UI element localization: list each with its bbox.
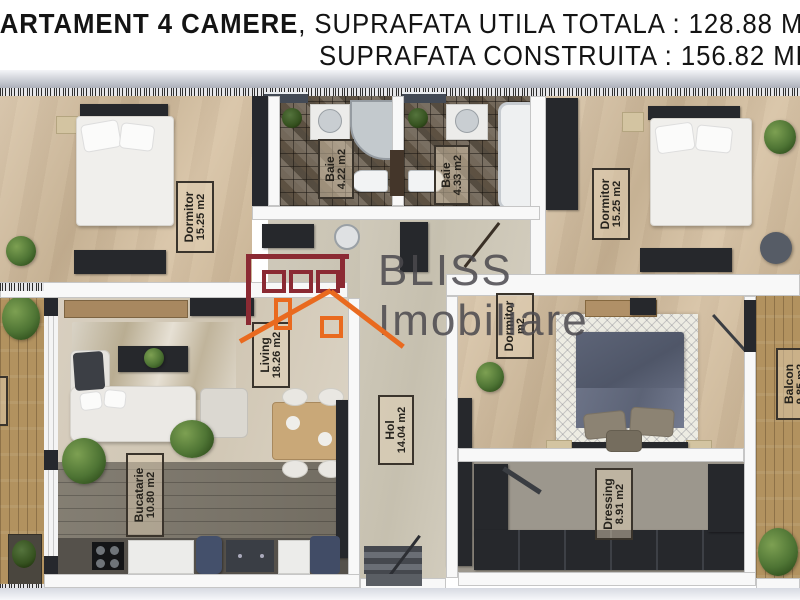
burner-icon bbox=[96, 559, 105, 568]
room-name: Dressing bbox=[602, 478, 615, 529]
wall-living-hol bbox=[348, 298, 360, 578]
wall-bath-left bbox=[268, 96, 280, 206]
watermark-brand-name: BLISS bbox=[378, 246, 513, 296]
room-name: Dormitor bbox=[183, 192, 196, 243]
wall-below-baths bbox=[252, 206, 540, 220]
wall-bath-bedroom-right bbox=[530, 96, 546, 296]
kitchen-tall-unit bbox=[310, 536, 340, 574]
plant-icon bbox=[758, 528, 798, 576]
kitchen-counter-white bbox=[128, 540, 194, 574]
logo-small-window-icon bbox=[320, 316, 343, 338]
room-name: Baie bbox=[440, 162, 453, 187]
room-label-balcon: Balcon 9.85 m2 bbox=[776, 348, 800, 420]
sideboard-living bbox=[190, 298, 254, 316]
room-name: Dormitor bbox=[599, 179, 612, 230]
sofa-throw-blanket bbox=[73, 351, 106, 391]
pillow bbox=[695, 124, 734, 154]
pillow bbox=[654, 121, 696, 154]
kitchen-counter-white-2 bbox=[278, 540, 310, 574]
room-label-baie-right: Baie 4.33 m2 bbox=[434, 145, 470, 205]
nightstand-left-bedroom bbox=[56, 116, 78, 134]
plant-icon bbox=[62, 438, 106, 484]
kitchen-cabinet-doors bbox=[226, 540, 274, 572]
bath-door-frame bbox=[390, 150, 404, 196]
hallway-cabinet bbox=[262, 224, 314, 248]
fridge-icon bbox=[196, 536, 222, 574]
wall-dressing-bottom bbox=[458, 572, 756, 586]
tv-box-icon bbox=[630, 298, 656, 315]
room-label-dormitor-left: Dormitor 15.25 m2 bbox=[176, 181, 214, 253]
exterior-wall-shadow bbox=[0, 70, 800, 89]
terrace-top-hatch bbox=[0, 283, 44, 291]
balcony-door-frame bbox=[744, 300, 756, 352]
room-area: 9.85 m2 bbox=[796, 364, 800, 404]
room-name: Balcon bbox=[783, 364, 796, 404]
plant-icon bbox=[282, 108, 302, 128]
sink-icon bbox=[318, 109, 342, 133]
chair-icon bbox=[282, 460, 308, 478]
console-shelf-wood bbox=[64, 300, 188, 318]
room-name: Bucatarie bbox=[133, 468, 146, 523]
room-name: Living bbox=[259, 337, 272, 372]
pillow bbox=[119, 122, 156, 152]
handle-icon bbox=[260, 554, 264, 558]
room-area: 18.26 m2 bbox=[272, 332, 284, 378]
room-label-bucatarie: Bucatarie 10.80 m2 bbox=[126, 453, 164, 537]
plant-icon bbox=[6, 236, 36, 266]
logo-building-right-edge-icon bbox=[340, 254, 345, 288]
burner-icon bbox=[110, 546, 119, 555]
window-band-post-mid bbox=[44, 450, 58, 470]
bathroom-window-right bbox=[402, 92, 446, 103]
room-label-dressing: Dressing 8.91 m2 bbox=[595, 468, 633, 540]
wall-bedroom-mid-dressing bbox=[458, 448, 744, 462]
page-subtitle: SUPRAFATA CONSTRUITA : 156.82 MP bbox=[319, 40, 800, 72]
dresser-right-bedroom bbox=[640, 248, 732, 272]
dressing-wardrobe-left bbox=[474, 464, 508, 536]
wall-kitchen-bottom bbox=[44, 574, 360, 588]
logo-door-icon bbox=[274, 298, 292, 330]
plant-icon bbox=[170, 420, 214, 458]
sink-icon bbox=[455, 109, 479, 133]
wardrobe-bedroom-right bbox=[546, 98, 578, 210]
plant-icon bbox=[2, 296, 40, 340]
terrace-label-clipped bbox=[0, 376, 8, 426]
chair-icon bbox=[282, 388, 308, 406]
room-area: 15.25 m2 bbox=[196, 194, 208, 240]
plant-icon bbox=[476, 362, 504, 392]
window-band-post-top bbox=[44, 298, 58, 316]
title-apartment-type: APARTAMENT 4 CAMERE bbox=[0, 8, 298, 39]
burner-icon bbox=[110, 559, 119, 568]
bed-mid-duvet bbox=[576, 332, 684, 390]
room-label-baie-left: Baie 4.22 m2 bbox=[318, 139, 354, 199]
room-area: 10.80 m2 bbox=[146, 472, 158, 518]
plate-icon bbox=[318, 432, 332, 446]
pouf-icon bbox=[760, 232, 792, 264]
handle-icon bbox=[238, 554, 242, 558]
dresser-left-bedroom bbox=[74, 250, 166, 274]
plant-icon bbox=[144, 348, 164, 368]
room-area: 8.91 m2 bbox=[615, 484, 627, 524]
wall-bedroom-bath-dark bbox=[252, 96, 268, 206]
page-bottom-strip bbox=[0, 588, 800, 600]
entrance-stoop bbox=[366, 574, 422, 586]
watermark-brand-subname: Imobiliare bbox=[378, 296, 589, 346]
logo-window-icon bbox=[262, 270, 286, 293]
room-name: Hol bbox=[384, 420, 397, 439]
room-area: 4.22 m2 bbox=[337, 149, 349, 189]
title-usable-area: , SUPRAFATA UTILA TOTALA : 128.88 MP bbox=[298, 8, 800, 39]
floor-plan-page: APARTAMENT 4 CAMERE, SUPRAFATA UTILA TOT… bbox=[0, 0, 800, 600]
pillow bbox=[79, 391, 103, 412]
room-area: 4.33 m2 bbox=[453, 155, 465, 195]
plant-icon bbox=[764, 120, 796, 154]
logo-window-icon bbox=[289, 270, 313, 293]
plant-icon bbox=[408, 108, 428, 128]
dressing-wardrobe-right bbox=[708, 464, 744, 532]
pillow bbox=[103, 389, 127, 409]
living-tv-cabinet bbox=[336, 400, 348, 558]
plate-icon bbox=[286, 416, 300, 430]
room-name: Baie bbox=[324, 156, 337, 181]
pillow bbox=[606, 430, 642, 452]
toilet-icon bbox=[352, 170, 388, 192]
living-west-window-band bbox=[44, 298, 58, 574]
washer-icon bbox=[334, 224, 360, 250]
room-label-dormitor-right: Dormitor 15.25 m2 bbox=[592, 168, 630, 240]
room-area: 15.25 m2 bbox=[612, 181, 624, 227]
window-band-post-bottom bbox=[44, 556, 58, 574]
page-title: APARTAMENT 4 CAMERE, SUPRAFATA UTILA TOT… bbox=[0, 8, 800, 40]
plant-icon bbox=[12, 540, 36, 568]
room-label-hol: Hol 14.04 m2 bbox=[378, 395, 414, 465]
room-area: 14.04 m2 bbox=[397, 407, 409, 453]
nightstand-right-bedroom bbox=[622, 112, 644, 132]
burner-icon bbox=[96, 546, 105, 555]
